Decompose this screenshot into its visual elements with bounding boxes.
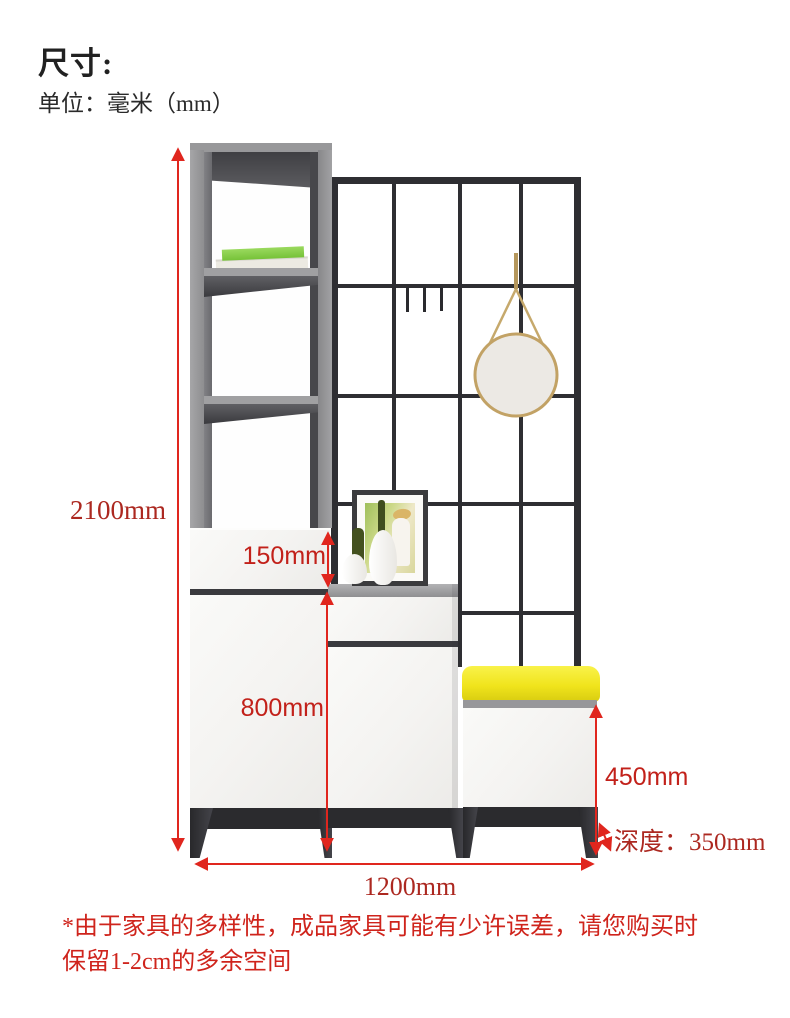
inner-left-wall [204,152,212,528]
label-total-width: 1200mm [350,872,470,902]
shelf-underside [204,404,318,424]
footnote-line1: *由于家具的多样性，成品家具可能有少许误差，请您购买时 [62,906,698,941]
label-total-height: 2100mm [60,495,166,526]
shelf-underside [204,276,318,297]
label-drawer-height: 150mm [238,542,326,571]
shelf [204,396,318,404]
label-depth: 深度：350mm [614,822,765,858]
leg [463,807,478,858]
hook-icon [406,287,409,312]
shelf [204,268,318,276]
bench-box [463,708,597,807]
hanging-mirror [455,245,580,425]
middle-door-front [328,647,458,808]
label-bench-height: 450mm [605,763,688,792]
vase-small [342,554,367,584]
leg [578,807,598,858]
hook-icon [440,287,443,311]
top-back-panel [204,152,318,188]
cabinet-interior [204,152,318,528]
leg [448,808,463,858]
mirror-face [475,334,557,416]
middle-plinth [328,808,458,828]
vase-large [369,530,397,585]
hook-icon [423,287,426,312]
cabinet-left-side [190,150,204,528]
bench-plinth [463,807,597,827]
footnote-line2: 保留1-2cm的多余空间 [62,941,291,976]
label-cabinet-height: 800mm [236,694,324,723]
grid-top-rail [331,177,581,184]
cabinet-top-edge [190,143,332,152]
leg [190,808,213,858]
inner-right-wall [310,152,318,528]
bench-seat-edge [463,700,597,708]
bench-cushion [462,666,600,702]
middle-right-shade [452,584,458,808]
product-dimension-sheet: 尺寸: 单位：毫米（mm） [0,0,790,1018]
middle-drawer-front [328,597,458,641]
cabinet-right-side [318,150,332,528]
